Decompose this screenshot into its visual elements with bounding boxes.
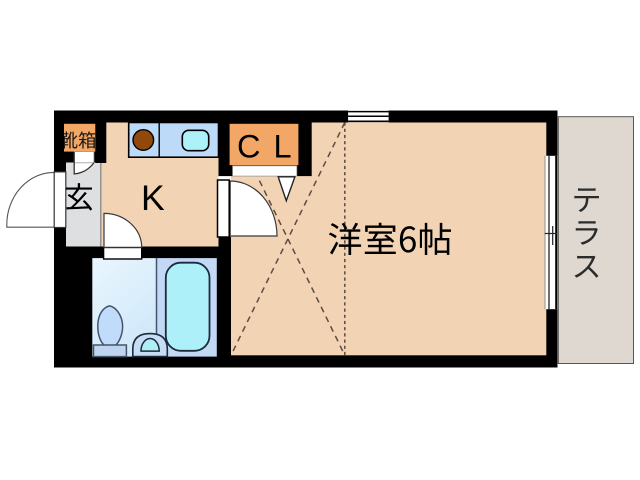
svg-text:K: K [141,178,165,218]
svg-text:C L: C L [237,129,294,165]
